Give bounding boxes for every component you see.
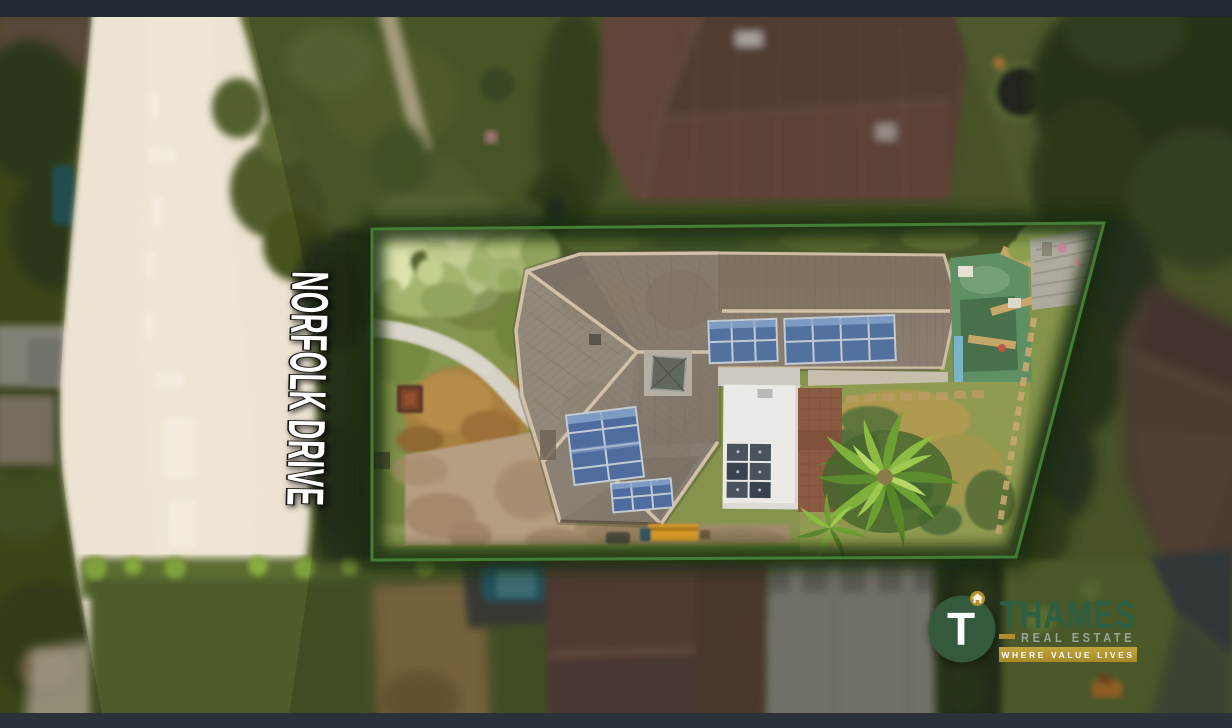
svg-text:NORFOLK DRIVE: NORFOLK DRIVE [276, 271, 340, 507]
svg-text:T: T [947, 603, 975, 655]
svg-text:WHERE VALUE LIVES: WHERE VALUE LIVES [1001, 650, 1134, 660]
svg-text:REAL ESTATE: REAL ESTATE [1021, 630, 1135, 645]
